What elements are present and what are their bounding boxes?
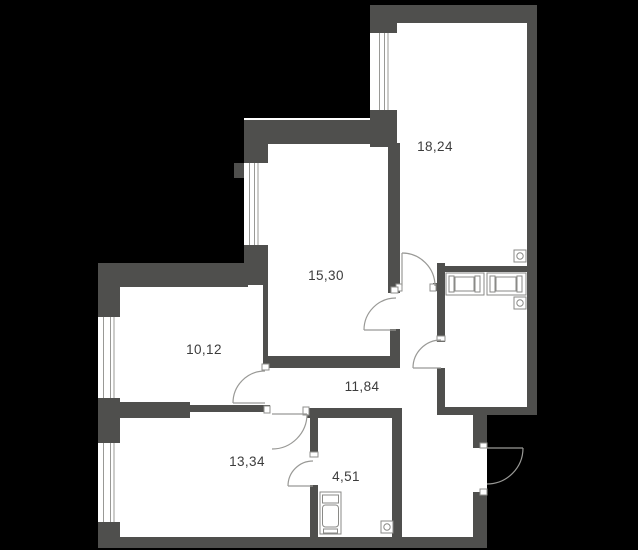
room-label-hallway: 11,84 (345, 379, 380, 394)
wardrobe-panel (517, 276, 522, 292)
washer-panel (323, 495, 339, 503)
wall-partition-18-dressing (438, 266, 527, 272)
wall-above-window-10 (98, 263, 120, 317)
wall-right (527, 5, 537, 415)
wall-dressing-west-lower (437, 368, 445, 407)
jamb-entry-door-top (480, 443, 487, 448)
wall-top-bathroom (307, 408, 402, 418)
wall-below-door-middle (390, 329, 400, 356)
wall-bathroom-left-lower (310, 485, 318, 537)
wall-bottom (98, 537, 487, 548)
vent-icon (514, 250, 526, 262)
wall-top-room-left (98, 263, 248, 287)
washer-base (324, 529, 338, 533)
wardrobe-panel (490, 276, 495, 292)
wall-between-middle-topright (388, 143, 400, 293)
wardrobe-panel (496, 277, 516, 291)
room-label-middle: 15,30 (308, 268, 344, 283)
wall-top (370, 5, 537, 23)
floorplan-canvas: 18,24 15,30 10,12 11,84 13,34 4,51 (0, 0, 638, 550)
room-label-bathroom: 4,51 (332, 469, 360, 484)
jamb-entry-door-bottom (480, 489, 487, 495)
vent-icon (514, 297, 526, 309)
wall-bathroom-right (392, 418, 402, 537)
floor-bottom-strip (98, 402, 487, 548)
wall-vestibule-east-lower (473, 492, 487, 537)
washer-drum (323, 505, 339, 527)
wardrobe-panel (475, 276, 480, 292)
jamb-door-15-top (391, 287, 398, 293)
vent-icon (381, 521, 393, 533)
wall-dressing-west-upper (437, 263, 445, 342)
wall-left-above-window-18 (370, 23, 397, 33)
room-label-left: 10,12 (186, 342, 222, 357)
wall-top-room-middle (244, 120, 397, 144)
wall-dressing-bottom (437, 407, 535, 415)
wardrobe-panel (449, 276, 454, 292)
wall-bathroom-left-upper (310, 418, 318, 457)
wall-window-nub-15 (234, 163, 244, 178)
wall-partition-left-middle (263, 285, 268, 356)
jamb-door-10-top (262, 364, 269, 370)
room-label-bottom-left: 13,34 (229, 454, 265, 469)
wall-thin-hall-bottom (190, 405, 270, 412)
wall-bottom-room-middle (263, 356, 400, 368)
wardrobe-panel (455, 277, 474, 291)
washing-machine-icon (320, 492, 341, 534)
jamb-door-bath-top (310, 452, 318, 457)
jamb-door-13-west (264, 406, 270, 413)
wall-between-left-bottom (98, 402, 190, 418)
wall-above-window-15 (244, 143, 268, 163)
floorplan-page: 18,24 15,30 10,12 11,84 13,34 4,51 (0, 0, 638, 550)
room-label-top-right: 18,24 (417, 139, 453, 154)
